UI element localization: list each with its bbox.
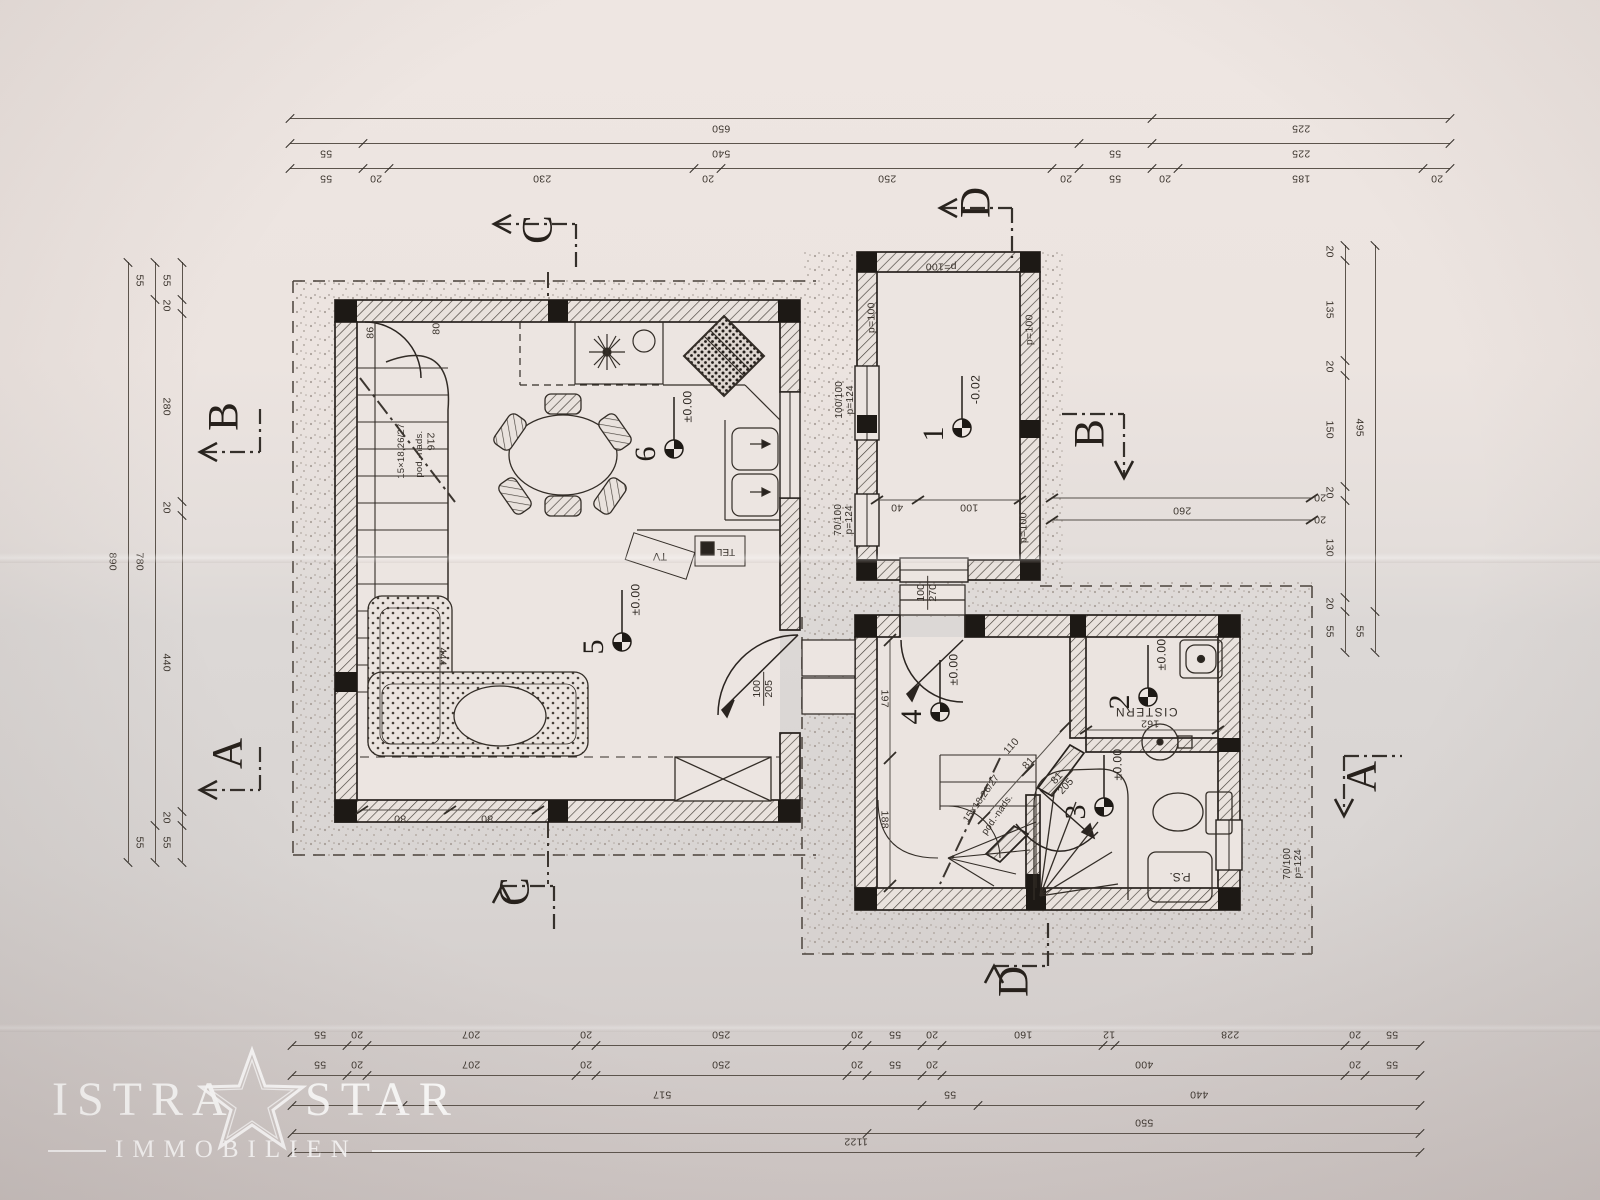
- dimension-label: 55: [928, 1088, 972, 1099]
- dimension-label: 185: [1279, 172, 1323, 183]
- dimension-label: 540: [699, 147, 743, 158]
- room-number-3: 3: [1061, 797, 1091, 827]
- dimension-label: 55: [1353, 611, 1364, 651]
- dim-label: 80: [472, 812, 502, 823]
- dimension-line: [1345, 245, 1346, 652]
- dimension-line: [128, 262, 129, 862]
- dim-label: 444: [436, 642, 447, 672]
- door-width: 100: [752, 672, 763, 706]
- section-marker-a-right: A: [1341, 757, 1384, 797]
- dimension-label: 20: [160, 488, 171, 528]
- cistern-label: CISTERN: [1106, 705, 1186, 718]
- dimension-label: 230: [520, 172, 564, 183]
- dimension-label: 517: [640, 1088, 684, 1099]
- dimension-label: 55: [1370, 1028, 1414, 1039]
- room-number-4: 4: [897, 702, 927, 732]
- door-size-living: 100 205: [752, 672, 776, 706]
- room-number-1: 1: [919, 419, 949, 449]
- dim-label: 20: [1305, 513, 1335, 524]
- watermark-rule-left: [48, 1150, 106, 1152]
- dimension-line: [290, 143, 1450, 144]
- tv-label: TV: [647, 549, 673, 561]
- dim-label: 216: [424, 427, 435, 457]
- stair-flight-note: 15×18,26/27: [397, 410, 407, 492]
- dimension-label: 55: [304, 147, 348, 158]
- dimension-label: 225: [1279, 147, 1323, 158]
- dimension-label: 890: [106, 542, 117, 582]
- dimension-line: [155, 262, 156, 862]
- dimension-label: 20: [1323, 347, 1334, 387]
- dimension-label: 20: [910, 1058, 954, 1069]
- tel-label: TEL: [712, 545, 740, 556]
- window-parapet: p=124: [1294, 835, 1305, 893]
- level-room-2: ±0.00: [1156, 624, 1169, 684]
- dimension-label: 495: [1353, 408, 1364, 448]
- parapet-label: p=100: [919, 260, 963, 271]
- dimension-label: 440: [160, 643, 171, 683]
- dimension-label: 20: [1143, 172, 1187, 183]
- door-height: 205: [764, 672, 776, 706]
- dim-label: 100: [954, 501, 984, 512]
- dimension-line: [290, 168, 1450, 169]
- room-number-5: 5: [579, 632, 609, 662]
- window-spec-a: 100/100 p=124: [835, 371, 857, 429]
- dimension-label: 650: [699, 122, 743, 133]
- watermark-brand-right: STAR: [305, 1072, 460, 1127]
- watermark-rule-right: [372, 1150, 450, 1152]
- dimension-label: 20: [354, 172, 398, 183]
- dimension-label: 250: [699, 1058, 743, 1069]
- dimension-label: 150: [1323, 410, 1334, 450]
- window-spec-b: 70/100 p=124: [834, 491, 856, 549]
- dimension-line: [290, 118, 1450, 119]
- level-room-1: -0.02: [970, 359, 983, 419]
- parapet-label: p=100: [866, 296, 877, 340]
- dim-label: 40: [882, 501, 912, 512]
- door-height: 270: [928, 576, 940, 610]
- dimension-label: 20: [1323, 232, 1334, 272]
- dimension-label: 440: [1177, 1088, 1221, 1099]
- parapet-label: p=100: [1018, 506, 1029, 550]
- dimension-label: 780: [133, 542, 144, 582]
- level-room-5: ±0.00: [630, 569, 643, 629]
- dimension-label: 280: [160, 387, 171, 427]
- floor-plan-drawing: [0, 0, 1600, 1200]
- dimension-label: 160: [1001, 1028, 1045, 1039]
- dimension-label: 400: [1122, 1058, 1166, 1069]
- door-width: 100: [916, 576, 927, 610]
- dimension-label: 250: [699, 1028, 743, 1039]
- dim-label: 20: [1305, 491, 1335, 502]
- dimension-line: [292, 1152, 1420, 1153]
- dimension-label: 20: [564, 1058, 608, 1069]
- window-parapet: p=124: [845, 491, 856, 549]
- floor-plan-photo: 6502255554055225552023020250205520185205…: [0, 0, 1600, 1200]
- dimension-label: 55: [133, 260, 144, 300]
- dimension-label: 55: [160, 823, 171, 863]
- section-marker-c-top: C: [517, 210, 560, 250]
- dim-label: 86: [365, 318, 376, 348]
- dimension-line: [292, 1075, 1420, 1076]
- dimension-line: [292, 1133, 1420, 1134]
- dim-label: 260: [1167, 504, 1197, 515]
- watermark-subtitle: IMMOBILIEN: [115, 1136, 358, 1164]
- dimension-label: 20: [1044, 172, 1088, 183]
- dimension-label: 207: [449, 1028, 493, 1039]
- dim-label: 80: [431, 314, 442, 344]
- dimension-label: 20: [910, 1028, 954, 1039]
- dimension-label: 55: [1323, 611, 1334, 651]
- parapet-label: p=100: [1024, 308, 1035, 352]
- dimension-label: 20: [1415, 172, 1459, 183]
- dimension-label: 12: [1087, 1028, 1131, 1039]
- dimension-label: 20: [686, 172, 730, 183]
- dimension-label: 135: [1323, 289, 1334, 329]
- dimension-label: 55: [133, 823, 144, 863]
- dimension-label: 55: [1370, 1058, 1414, 1069]
- dim-label: 188: [878, 805, 889, 835]
- dimension-label: 225: [1279, 122, 1323, 133]
- section-marker-d-bottom: D: [993, 962, 1036, 1002]
- dimension-label: 228: [1208, 1028, 1252, 1039]
- dimension-label: 20: [160, 285, 171, 325]
- section-marker-c-bottom: C: [494, 872, 537, 912]
- room-number-6: 6: [631, 439, 661, 469]
- window-spec-c: 70/100 p=124: [1283, 835, 1305, 893]
- dimension-line: [1375, 245, 1376, 652]
- section-marker-b-right: B: [1069, 414, 1112, 454]
- window-parapet: p=124: [846, 371, 857, 429]
- section-marker-a-left: A: [207, 734, 250, 774]
- ps-label: P.S.: [1165, 870, 1195, 883]
- level-room-4: ±0.00: [948, 639, 961, 699]
- dimension-line: [182, 262, 183, 862]
- door-size-entry: 100 270: [916, 576, 940, 610]
- dimension-label: 550: [1122, 1116, 1166, 1127]
- dim-label: 162: [1135, 717, 1165, 728]
- section-marker-d-top: D: [955, 183, 998, 223]
- dimension-label: 55: [1093, 172, 1137, 183]
- dim-label: 80: [385, 812, 415, 823]
- dim-label: 197: [878, 684, 889, 714]
- section-marker-b-left: B: [203, 397, 246, 437]
- dimension-label: 55: [304, 172, 348, 183]
- dimension-line: [292, 1045, 1420, 1046]
- level-room-3: ±0.00: [1112, 734, 1125, 794]
- dimension-label: 20: [335, 1028, 379, 1039]
- dimension-label: 20: [335, 1058, 379, 1069]
- dimension-line: [292, 1105, 1420, 1106]
- dimension-label: 1122: [834, 1135, 878, 1146]
- dimension-label: 130: [1323, 528, 1334, 568]
- dimension-label: 20: [564, 1028, 608, 1039]
- dimension-label: 55: [1093, 147, 1137, 158]
- dimension-label: 207: [449, 1058, 493, 1069]
- dimension-label: 250: [865, 172, 909, 183]
- level-room-6: ±0.00: [682, 376, 695, 436]
